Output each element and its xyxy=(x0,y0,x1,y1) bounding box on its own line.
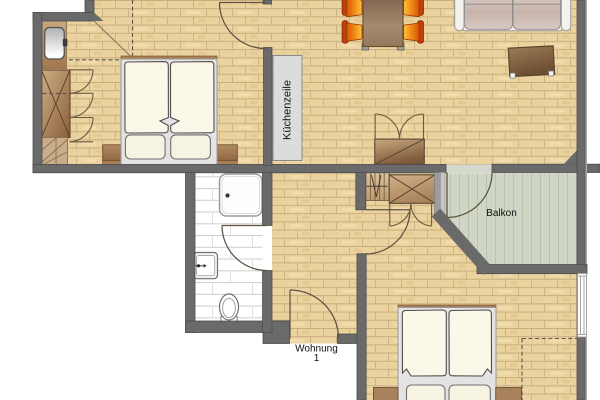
svg-text:Balkon: Balkon xyxy=(486,208,517,219)
svg-text:Küchenzeile: Küchenzeile xyxy=(282,80,294,140)
svg-text:1: 1 xyxy=(314,353,320,364)
